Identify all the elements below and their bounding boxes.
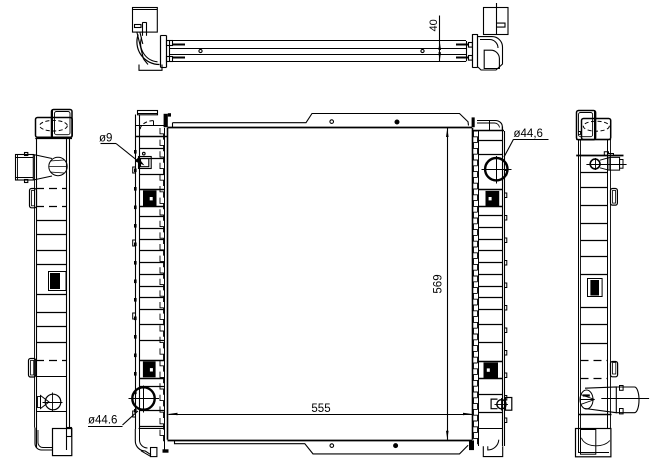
svg-text:555: 555 [311, 403, 330, 415]
svg-text:40: 40 [428, 19, 440, 31]
svg-text:ø44,6: ø44,6 [514, 128, 543, 140]
svg-text:ø9: ø9 [99, 133, 112, 145]
svg-text:569: 569 [433, 274, 445, 293]
svg-text:ø44.6: ø44.6 [88, 415, 117, 427]
